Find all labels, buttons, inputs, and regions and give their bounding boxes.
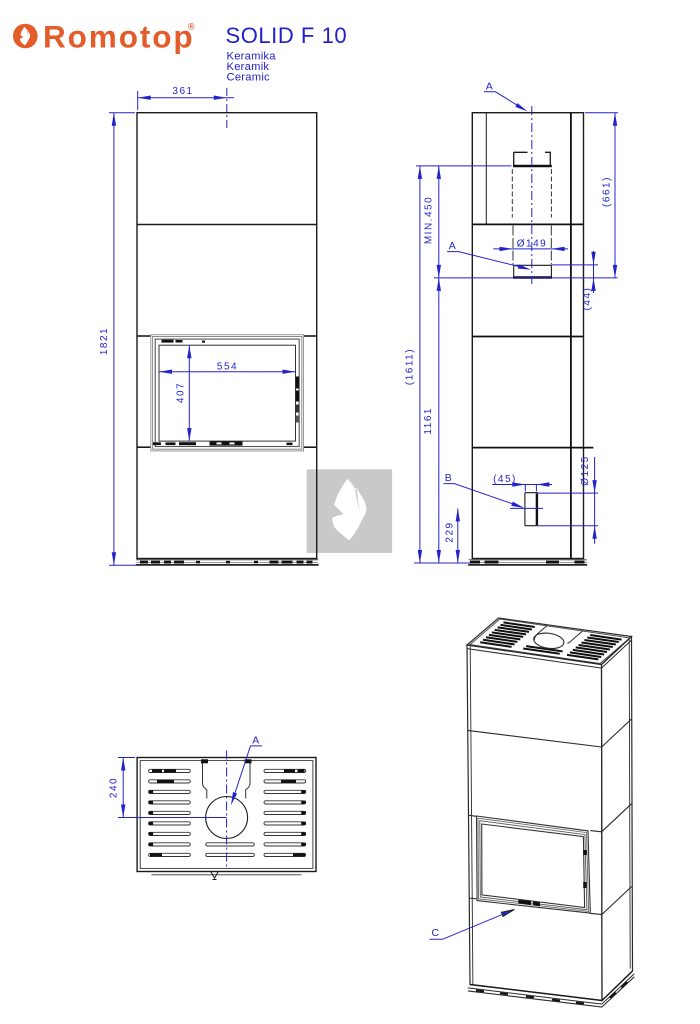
svg-text:Romotop: Romotop bbox=[43, 19, 195, 55]
svg-text:554: 554 bbox=[217, 361, 238, 372]
svg-text:1821: 1821 bbox=[99, 327, 110, 355]
svg-text:1161: 1161 bbox=[423, 407, 434, 435]
svg-text:407: 407 bbox=[176, 382, 187, 403]
svg-text:240: 240 bbox=[109, 777, 120, 798]
svg-text:(661): (661) bbox=[602, 176, 613, 207]
svg-text:(44): (44) bbox=[582, 287, 593, 311]
svg-text:®: ® bbox=[188, 22, 195, 32]
svg-text:A: A bbox=[252, 735, 260, 747]
svg-text:B: B bbox=[445, 472, 453, 484]
svg-text:A: A bbox=[449, 240, 457, 252]
svg-text:361: 361 bbox=[172, 86, 193, 97]
svg-text:Ø125: Ø125 bbox=[580, 455, 591, 485]
svg-text:C: C bbox=[431, 927, 439, 939]
svg-text:A: A bbox=[486, 81, 494, 93]
svg-text:Ø149: Ø149 bbox=[517, 239, 547, 250]
svg-text:SOLID F 10: SOLID F 10 bbox=[226, 23, 348, 48]
svg-text:Ceramic: Ceramic bbox=[227, 72, 271, 84]
svg-text:(45): (45) bbox=[493, 474, 517, 485]
svg-text:MIN.450: MIN.450 bbox=[424, 196, 435, 244]
svg-text:229: 229 bbox=[445, 521, 456, 542]
svg-text:(1611): (1611) bbox=[405, 348, 416, 385]
